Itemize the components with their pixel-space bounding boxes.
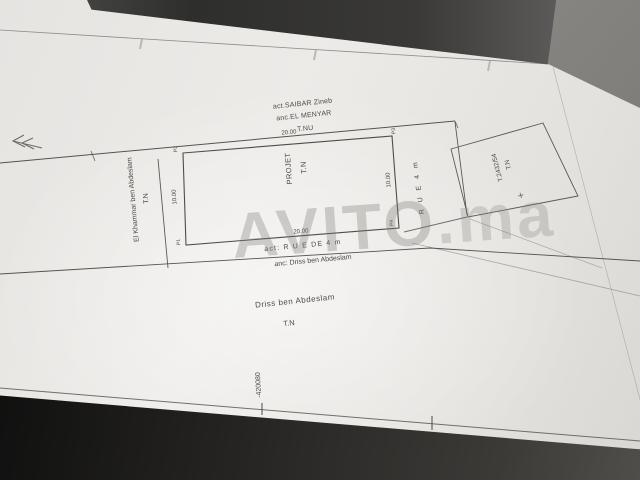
north-boundary-line bbox=[0, 121, 455, 163]
watermark-suffix: .ma bbox=[434, 177, 558, 257]
watermark-brand: AVITO bbox=[229, 186, 438, 272]
dim-left: 10.00 bbox=[171, 189, 178, 204]
corner-p2: P2 bbox=[173, 146, 179, 153]
frame-right-line bbox=[553, 67, 640, 430]
project-parcel-name: PROJET bbox=[283, 152, 294, 185]
south-owner-terrain: T.N bbox=[283, 318, 295, 328]
top-grid-tick bbox=[140, 39, 142, 49]
grid-coord-left: -420080 bbox=[255, 372, 263, 398]
photo-of-survey-plan: act.SAIBAR Zineb anc.EL MENYAR T.NU El K… bbox=[0, 0, 640, 480]
corner-p3: P3 bbox=[391, 128, 397, 135]
boundary-tick bbox=[91, 151, 95, 161]
project-parcel-label: PROJET T.N bbox=[283, 151, 309, 185]
dim-right: 10.00 bbox=[385, 172, 392, 187]
top-grid-tick bbox=[488, 61, 490, 71]
corner-p1: P1 bbox=[176, 239, 182, 246]
top-grid-tick bbox=[314, 50, 316, 60]
north-arrow-icon bbox=[13, 135, 42, 149]
west-divider-line bbox=[158, 159, 168, 268]
